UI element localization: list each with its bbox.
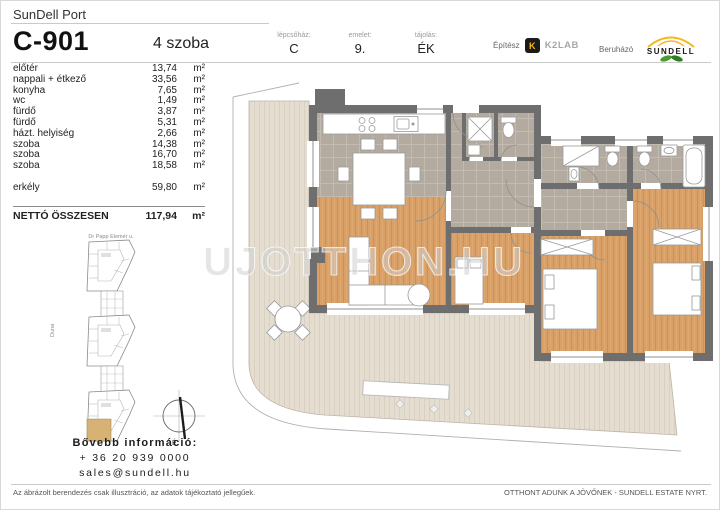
street-label: Dr Papp Elemér u.: [88, 234, 134, 240]
meta-orientation: tájolás: ÉK: [395, 32, 457, 56]
k2lab-logo-icon: K: [525, 38, 540, 53]
sink-icon: [394, 117, 418, 132]
bedroom2-furniture: [653, 229, 701, 315]
footer-disclaimer: Az ábrázolt berendezés csak illusztráció…: [13, 488, 255, 497]
table-row-total: NETTÓ ÖSSZESEN117,94m²: [13, 206, 205, 222]
armchair: [408, 284, 430, 306]
datasheet-page: SunDell Port C-901 4 szoba lépcsőház: C …: [0, 0, 720, 510]
toilet-icon: [605, 146, 620, 152]
site-building-2: [87, 315, 135, 366]
contact-block: Bővebb információ: + 36 20 939 0000 sale…: [49, 437, 221, 479]
floor-plan: UJOTTHON.HU: [229, 79, 719, 451]
table-row: nappali + étkező33,56m²: [13, 75, 205, 86]
watermark: UJOTTHON.HU: [203, 240, 525, 284]
table-row: házt. helyiség2,66m²: [13, 129, 205, 140]
developer-label: Beruházó: [599, 45, 633, 54]
developer-block: Beruházó SUNDELL: [599, 35, 703, 63]
contact-phone: + 36 20 939 0000: [49, 452, 221, 464]
kitchen-counter: [323, 114, 445, 134]
site-corridor-2: [101, 366, 123, 392]
footer-divider: [11, 484, 711, 485]
table-row: szoba18,58m²: [13, 161, 205, 172]
unit-meta: lépcsőház: C emelet: 9. tájolás: ÉK: [263, 32, 457, 56]
site-building-1: [87, 240, 135, 291]
river-label: Duna: [50, 323, 56, 337]
site-building-3: [87, 390, 135, 441]
architect-name: K2LAB: [545, 40, 579, 51]
toilet-icon: [637, 146, 652, 152]
meta-staircase: lépcsőház: C: [263, 32, 325, 56]
brand-title: SunDell Port: [13, 7, 86, 22]
unit-id: C-901: [13, 26, 89, 57]
footer-company: OTTHONT ADUNK A JÖVŐNEK - SUNDELL ESTATE…: [504, 488, 707, 497]
bedroom1-furniture: [541, 239, 597, 329]
developer-name: SUNDELL: [647, 47, 695, 56]
meta-floor: emelet: 9.: [329, 32, 391, 56]
area-table: előtér13,74m² nappali + étkező33,56m² ko…: [13, 64, 205, 222]
sundell-logo-icon: SUNDELL: [639, 35, 703, 63]
contact-email: sales@sundell.hu: [49, 467, 221, 479]
site-corridor-1: [101, 291, 123, 317]
table-row-balcony: erkély59,80m²: [13, 183, 205, 194]
architect-label: Építész: [493, 41, 520, 50]
sink-icon: [661, 145, 677, 156]
room-corridor-floor: [541, 189, 627, 230]
header-divider: [11, 23, 269, 24]
room-count: 4 szoba: [153, 35, 209, 53]
header-bottom-divider: [11, 62, 711, 63]
contact-heading: Bővebb információ:: [49, 437, 221, 449]
architect-block: Építész K K2LAB: [493, 38, 579, 53]
